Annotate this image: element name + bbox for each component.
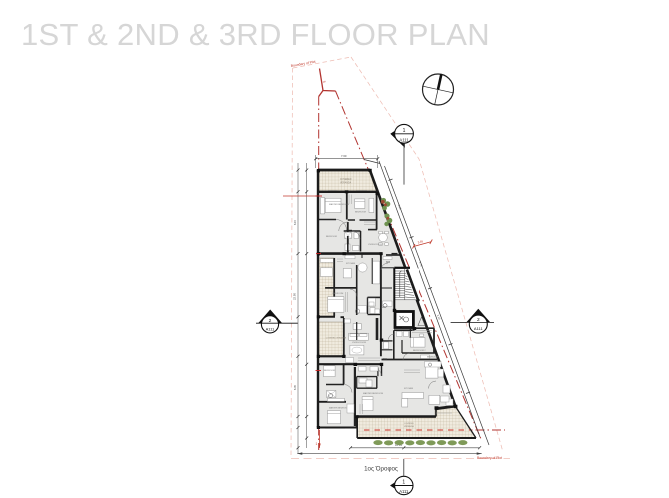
svg-text:BEDROOM: BEDROOM	[324, 370, 335, 372]
svg-text:A111: A111	[474, 326, 484, 331]
svg-text:VERANDA: VERANDA	[340, 182, 352, 185]
svg-text:Boundary of Plot: Boundary of Plot	[477, 456, 502, 460]
svg-text:2: 2	[269, 318, 272, 324]
svg-text:303: 303	[386, 261, 391, 264]
svg-text:1ος Όροφος: 1ος Όροφος	[364, 466, 398, 473]
svg-text:5.75: 5.75	[418, 261, 424, 268]
svg-text:6.10: 6.10	[397, 204, 403, 211]
svg-text:MASTER BEDROOM: MASTER BEDROOM	[329, 203, 349, 206]
svg-text:BEDROOM: BEDROOM	[427, 357, 438, 359]
svg-text:5: 5	[322, 80, 326, 83]
svg-text:COVERED: COVERED	[404, 423, 414, 425]
svg-text:BEDROOM 2: BEDROOM 2	[413, 350, 426, 352]
svg-text:LIVING ROOM: LIVING ROOM	[368, 244, 382, 246]
svg-text:BEDROOM: BEDROOM	[333, 293, 344, 295]
svg-text:7.60: 7.60	[341, 154, 347, 158]
svg-text:A111: A111	[266, 327, 276, 332]
svg-text:6.15: 6.15	[294, 220, 297, 225]
svg-text:2: 2	[477, 317, 480, 323]
svg-text:KITCHEN: KITCHEN	[404, 388, 414, 390]
svg-text:BEDROOM: BEDROOM	[326, 236, 337, 238]
svg-text:1: 1	[403, 128, 406, 134]
svg-text:VERANDA: VERANDA	[404, 425, 414, 428]
svg-text:1: 1	[402, 480, 405, 486]
svg-text:Boundary of Plot: Boundary of Plot	[290, 60, 315, 68]
svg-text:A111: A111	[399, 489, 409, 494]
svg-text:22.95: 22.95	[293, 293, 297, 300]
svg-text:MASTER BEDROOM: MASTER BEDROOM	[363, 392, 383, 395]
svg-text:COVERED VERANDA: COVERED VERANDA	[326, 337, 347, 340]
svg-text:A111: A111	[399, 138, 409, 143]
svg-text:COVERED: COVERED	[340, 179, 352, 181]
svg-text:LIVING ROOM: LIVING ROOM	[352, 342, 366, 344]
svg-text:MASTER BEDROOM: MASTER BEDROOM	[329, 407, 349, 410]
svg-text:1: 1	[316, 442, 318, 446]
svg-text:6.35: 6.35	[294, 385, 297, 390]
svg-text:KITCHEN: KITCHEN	[346, 263, 356, 265]
svg-text:301: 301	[383, 358, 388, 361]
svg-text:BEDROOM: BEDROOM	[355, 212, 366, 214]
